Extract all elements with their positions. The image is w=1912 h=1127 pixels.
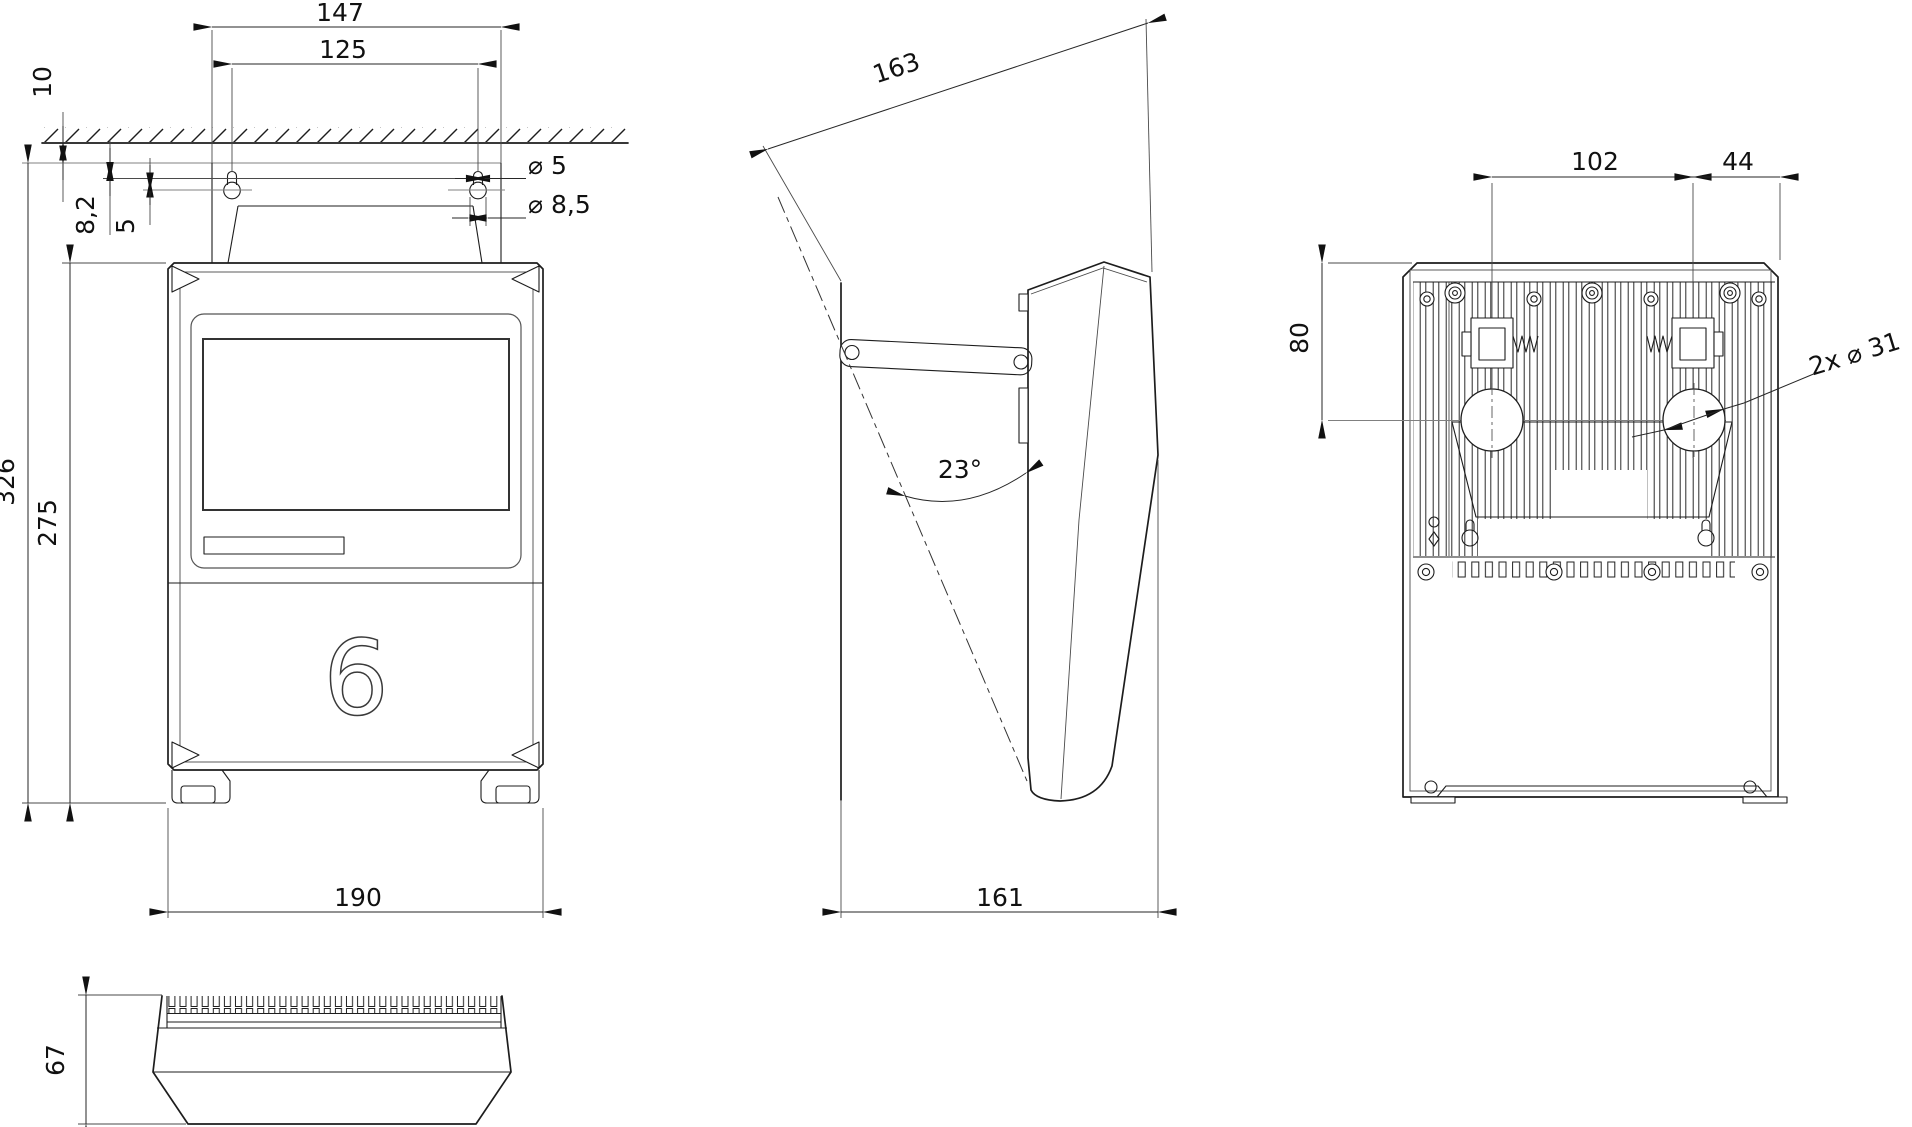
dim-back-right-offset: 44 bbox=[1722, 147, 1754, 176]
mounting-strap bbox=[839, 339, 1032, 375]
vent-slots bbox=[1452, 561, 1735, 578]
front-view: 6 147 125 10 8, bbox=[0, 0, 628, 918]
dim-front-height: 275 bbox=[33, 499, 62, 547]
dim-back-grommets: 2x ⌀ 31 bbox=[1806, 326, 1904, 381]
side-view: 23° 163 161 bbox=[763, 19, 1158, 918]
bottom-clip-left bbox=[172, 770, 230, 803]
dim-front-wall-gap: 10 bbox=[28, 66, 57, 98]
cable-grommet-hole bbox=[1461, 389, 1523, 451]
dim-front-hole-drop: 5 bbox=[111, 218, 140, 234]
drawing-svg: 6 147 125 10 8, bbox=[0, 0, 1912, 1127]
top-view: 67 bbox=[41, 995, 511, 1124]
display-screen bbox=[203, 339, 509, 510]
back-bottom-feet bbox=[1411, 781, 1787, 803]
rear-hook bbox=[1019, 294, 1028, 311]
dim-side-tilt-angle: 23° bbox=[938, 455, 982, 484]
dim-front-mount-width: 147 bbox=[316, 0, 364, 27]
chamfer-mark bbox=[512, 742, 539, 768]
keyhole-slot-right bbox=[470, 172, 487, 199]
bottom-clip-right bbox=[481, 770, 539, 803]
dim-top-height: 67 bbox=[41, 1044, 70, 1076]
device-body-side bbox=[1028, 262, 1158, 801]
chamfer-mark bbox=[172, 266, 199, 292]
dim-front-width: 190 bbox=[334, 883, 382, 912]
dim-front-hole-dia: ⌀ 8,5 bbox=[528, 190, 591, 219]
dim-front-slot-dia: ⌀ 5 bbox=[528, 151, 567, 180]
rear-hook bbox=[1019, 388, 1028, 443]
dim-back-boss-spacing: 102 bbox=[1571, 147, 1619, 176]
device-body-top bbox=[153, 996, 511, 1124]
chamfer-mark bbox=[512, 266, 539, 292]
back-view: 102 44 80 2x ⌀ 31 bbox=[1285, 147, 1903, 803]
keyhole-slot-left bbox=[224, 172, 241, 199]
dim-side-slant-length: 163 bbox=[869, 47, 923, 90]
dim-front-hole-spacing: 125 bbox=[319, 35, 367, 64]
dim-back-top-to-hole: 80 bbox=[1285, 322, 1314, 354]
dim-side-depth: 161 bbox=[976, 883, 1024, 912]
tilt-axis-line bbox=[778, 197, 1027, 781]
dim-front-total-height: 326 bbox=[0, 458, 20, 506]
technical-drawing-canvas: 6 147 125 10 8, bbox=[0, 0, 1912, 1127]
button-bar bbox=[204, 537, 344, 554]
dim-front-slot-drop: 8,2 bbox=[71, 195, 100, 235]
chamfer-mark bbox=[172, 742, 199, 768]
wall-hatching bbox=[42, 127, 628, 142]
heatsink-comb bbox=[167, 996, 501, 1014]
brand-logo: 6 bbox=[323, 619, 389, 739]
